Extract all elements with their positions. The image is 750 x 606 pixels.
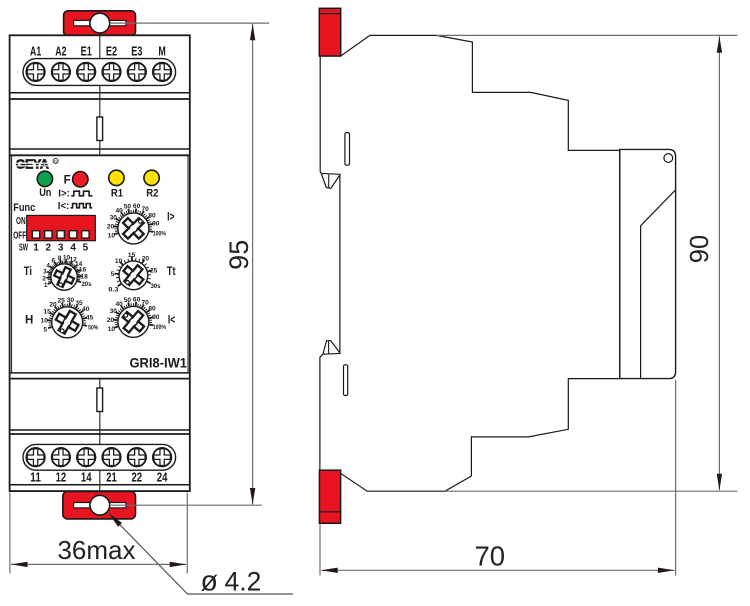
svg-text:20: 20 <box>49 302 57 309</box>
svg-text:20: 20 <box>142 256 150 263</box>
svg-text:I>: I> <box>167 212 175 224</box>
svg-text:50: 50 <box>124 204 132 211</box>
svg-text:20: 20 <box>107 223 115 230</box>
svg-text:14: 14 <box>81 469 92 484</box>
svg-text:22: 22 <box>132 469 143 484</box>
svg-text:ø4.2: ø4.2 <box>201 566 262 598</box>
svg-text:60: 60 <box>133 203 141 210</box>
svg-text:Ti: Ti <box>24 266 32 278</box>
svg-text:18: 18 <box>80 273 88 280</box>
svg-text:0.3: 0.3 <box>108 287 118 294</box>
svg-text:A2: A2 <box>55 43 66 58</box>
svg-text:80: 80 <box>148 212 156 219</box>
svg-text:10: 10 <box>108 233 116 240</box>
svg-text:Un: Un <box>39 187 51 199</box>
svg-text:E2: E2 <box>106 43 117 58</box>
svg-text:50: 50 <box>124 297 132 304</box>
svg-text:8: 8 <box>58 255 62 262</box>
svg-text:5: 5 <box>83 242 89 253</box>
svg-text:F: F <box>64 174 71 186</box>
svg-text:Func: Func <box>13 202 35 214</box>
svg-text:30: 30 <box>67 297 75 304</box>
svg-text:R1: R1 <box>111 187 123 199</box>
svg-text:100%: 100% <box>153 324 167 331</box>
svg-text:60: 60 <box>133 296 141 303</box>
svg-text:3: 3 <box>43 269 47 276</box>
svg-text:10: 10 <box>115 258 123 265</box>
svg-text:10: 10 <box>108 326 116 333</box>
svg-text:M: M <box>158 43 165 58</box>
svg-text:2: 2 <box>46 242 52 253</box>
svg-text:6: 6 <box>51 258 55 265</box>
svg-text:30: 30 <box>110 215 118 222</box>
svg-text:10: 10 <box>41 317 49 324</box>
svg-text:20: 20 <box>107 317 115 324</box>
svg-text:36max: 36max <box>57 535 135 565</box>
svg-text:40: 40 <box>82 306 90 313</box>
svg-text:20s: 20s <box>81 281 91 288</box>
svg-text:90: 90 <box>152 314 160 321</box>
svg-text:11: 11 <box>30 469 41 484</box>
svg-text:80: 80 <box>148 306 156 313</box>
svg-text:90: 90 <box>686 235 714 263</box>
svg-text:24: 24 <box>157 469 168 484</box>
svg-text:ON: ON <box>16 216 26 227</box>
svg-text:OFF: OFF <box>13 230 26 241</box>
svg-text:21: 21 <box>106 469 117 484</box>
svg-text:2: 2 <box>42 275 46 282</box>
svg-text:E3: E3 <box>131 43 142 58</box>
svg-text:GRI8-IW1: GRI8-IW1 <box>130 355 188 370</box>
svg-text:R: R <box>54 158 57 163</box>
svg-text:30s: 30s <box>150 283 160 290</box>
svg-text:H: H <box>25 315 33 327</box>
svg-text:70: 70 <box>475 541 506 572</box>
svg-text:R2: R2 <box>146 187 158 199</box>
svg-text:30: 30 <box>110 308 118 315</box>
svg-text:40: 40 <box>116 208 124 215</box>
svg-text:15: 15 <box>128 252 136 259</box>
svg-text:45: 45 <box>86 315 94 322</box>
svg-text:1: 1 <box>44 282 48 289</box>
svg-text:25: 25 <box>150 267 158 274</box>
svg-text:3: 3 <box>58 242 64 253</box>
svg-text:90: 90 <box>152 221 160 228</box>
svg-text:50%: 50% <box>88 324 98 331</box>
svg-text:GEYA: GEYA <box>16 158 49 172</box>
svg-text:1: 1 <box>33 242 39 253</box>
svg-text:4: 4 <box>46 262 50 269</box>
svg-text:I>:: I>: <box>58 189 70 200</box>
svg-text:5: 5 <box>43 326 47 333</box>
svg-text:I<: I< <box>168 315 176 327</box>
svg-text:5: 5 <box>111 271 115 278</box>
svg-text:SW: SW <box>19 242 28 253</box>
svg-text:I<:: I<: <box>58 201 70 212</box>
svg-text:40: 40 <box>116 301 124 308</box>
svg-text:4: 4 <box>70 242 76 253</box>
svg-text:95: 95 <box>224 240 254 270</box>
svg-text:15: 15 <box>43 309 51 316</box>
svg-text:100%: 100% <box>153 230 167 237</box>
svg-text:25: 25 <box>58 298 66 305</box>
svg-text:A1: A1 <box>30 43 41 58</box>
svg-text:E1: E1 <box>81 43 92 58</box>
svg-text:12: 12 <box>56 469 67 484</box>
svg-text:Tt: Tt <box>167 266 176 278</box>
